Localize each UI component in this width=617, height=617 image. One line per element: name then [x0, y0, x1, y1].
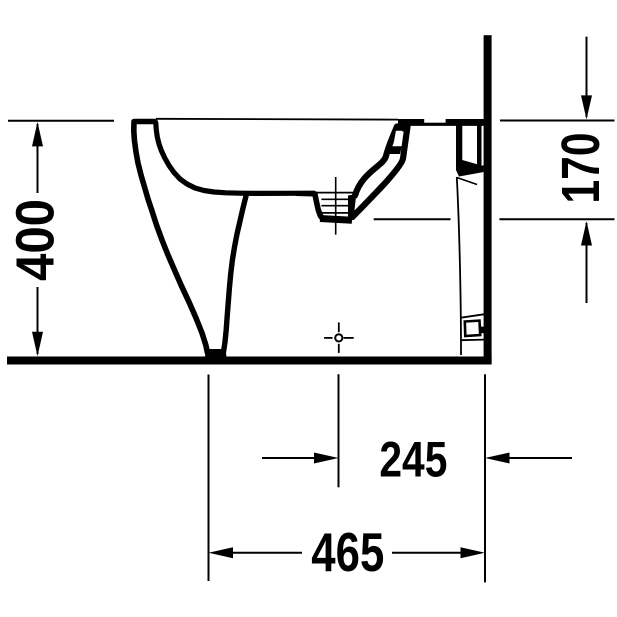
svg-text:245: 245 [379, 432, 447, 488]
svg-text:170: 170 [552, 133, 611, 204]
svg-text:400: 400 [7, 199, 66, 281]
svg-text:465: 465 [311, 521, 384, 583]
